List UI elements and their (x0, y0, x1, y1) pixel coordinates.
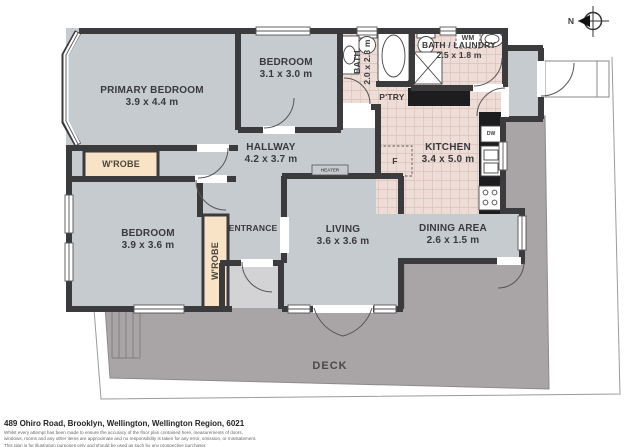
heater-label: HEATER (321, 168, 339, 173)
footer: 489 Ohiro Road, Brooklyn, Wellington, We… (4, 419, 424, 447)
floor-plan-page: PRIMARY BEDROOM 3.9 x 4.4 m BEDROOM 3.1 … (0, 0, 640, 447)
room-label-entrance: ENTRANCE (229, 223, 278, 233)
disclaimer-line-2: windows, rooms and any other items are a… (4, 436, 424, 441)
room-label-hallway: HALLWAY 4.2 x 3.7 m (245, 142, 298, 166)
room-label-living: LIVING 3.6 x 3.6 m (317, 224, 370, 248)
fridge-label: F (392, 156, 397, 166)
room-label-primary-bedroom: PRIMARY BEDROOM 3.9 x 4.4 m (100, 85, 204, 109)
property-address: 489 Ohiro Road, Brooklyn, Wellington, We… (4, 419, 424, 429)
wardrobe-top-label: W'ROBE (102, 158, 140, 170)
room-label-bedroom-top: BEDROOM 3.1 x 3.0 m (259, 57, 313, 81)
dining-dims: 2.6 x 1.5 m (419, 235, 487, 247)
kitchen-name: KITCHEN (425, 142, 471, 153)
dishwasher-label: DW (487, 131, 495, 137)
disclaimer-line-1: Whilst every attempt has been made to en… (4, 430, 424, 435)
living-name: LIVING (326, 224, 361, 235)
hallway-dims: 4.2 x 3.7 m (245, 154, 298, 166)
living-dims: 3.6 x 3.6 m (317, 236, 370, 248)
bath-laundry-dims: 2.5 x 1.8 m (422, 50, 496, 60)
north-arrow-icon (578, 6, 609, 37)
entrance-step (225, 263, 278, 308)
wardrobe-entry-label: W'ROBE (209, 242, 221, 280)
bedroom-name: BEDROOM (121, 228, 175, 239)
washing-machine-label: WM (462, 35, 475, 43)
primary-bedroom-dims: 3.9 x 4.4 m (100, 97, 204, 109)
room-label-bedroom: BEDROOM 3.9 x 3.6 m (121, 228, 175, 252)
stove (479, 186, 501, 210)
room-label-bath-laundry: BATH / LAUNDRY 2.5 x 1.8 m (422, 40, 496, 60)
exterior-landing (545, 61, 609, 97)
room-label-kitchen: KITCHEN 3.4 x 5.0 m (422, 142, 475, 166)
north-label: N (568, 16, 574, 26)
room-label-deck: DECK (312, 360, 347, 372)
room-label-bath: BATH 2.0 x 2.3 m (352, 39, 372, 84)
primary-bedroom-name: PRIMARY BEDROOM (100, 85, 204, 96)
disclaimer-line-3: This plan is for illustration purposes o… (4, 443, 424, 447)
bath-dims: 2.0 x 2.3 m (362, 39, 372, 84)
hallway-name: HALLWAY (246, 142, 295, 153)
bath-laundry-name: BATH / LAUNDRY (422, 40, 496, 50)
bedroom-top-dims: 3.1 x 3.0 m (259, 69, 313, 81)
floor-entrance (220, 208, 284, 264)
bedroom-top-name: BEDROOM (259, 57, 313, 68)
kitchen-dims: 3.4 x 5.0 m (422, 154, 475, 166)
entrance-name: ENTRANCE (229, 223, 278, 233)
room-label-dining: DINING AREA 2.6 x 1.5 m (419, 223, 487, 247)
dining-name: DINING AREA (419, 223, 487, 234)
bathtub (378, 30, 409, 82)
deck-name: DECK (312, 360, 347, 372)
bedroom-dims: 3.9 x 3.6 m (121, 240, 175, 252)
bath-name: BATH (352, 50, 362, 74)
pantry-label: P'TRY (379, 92, 404, 102)
